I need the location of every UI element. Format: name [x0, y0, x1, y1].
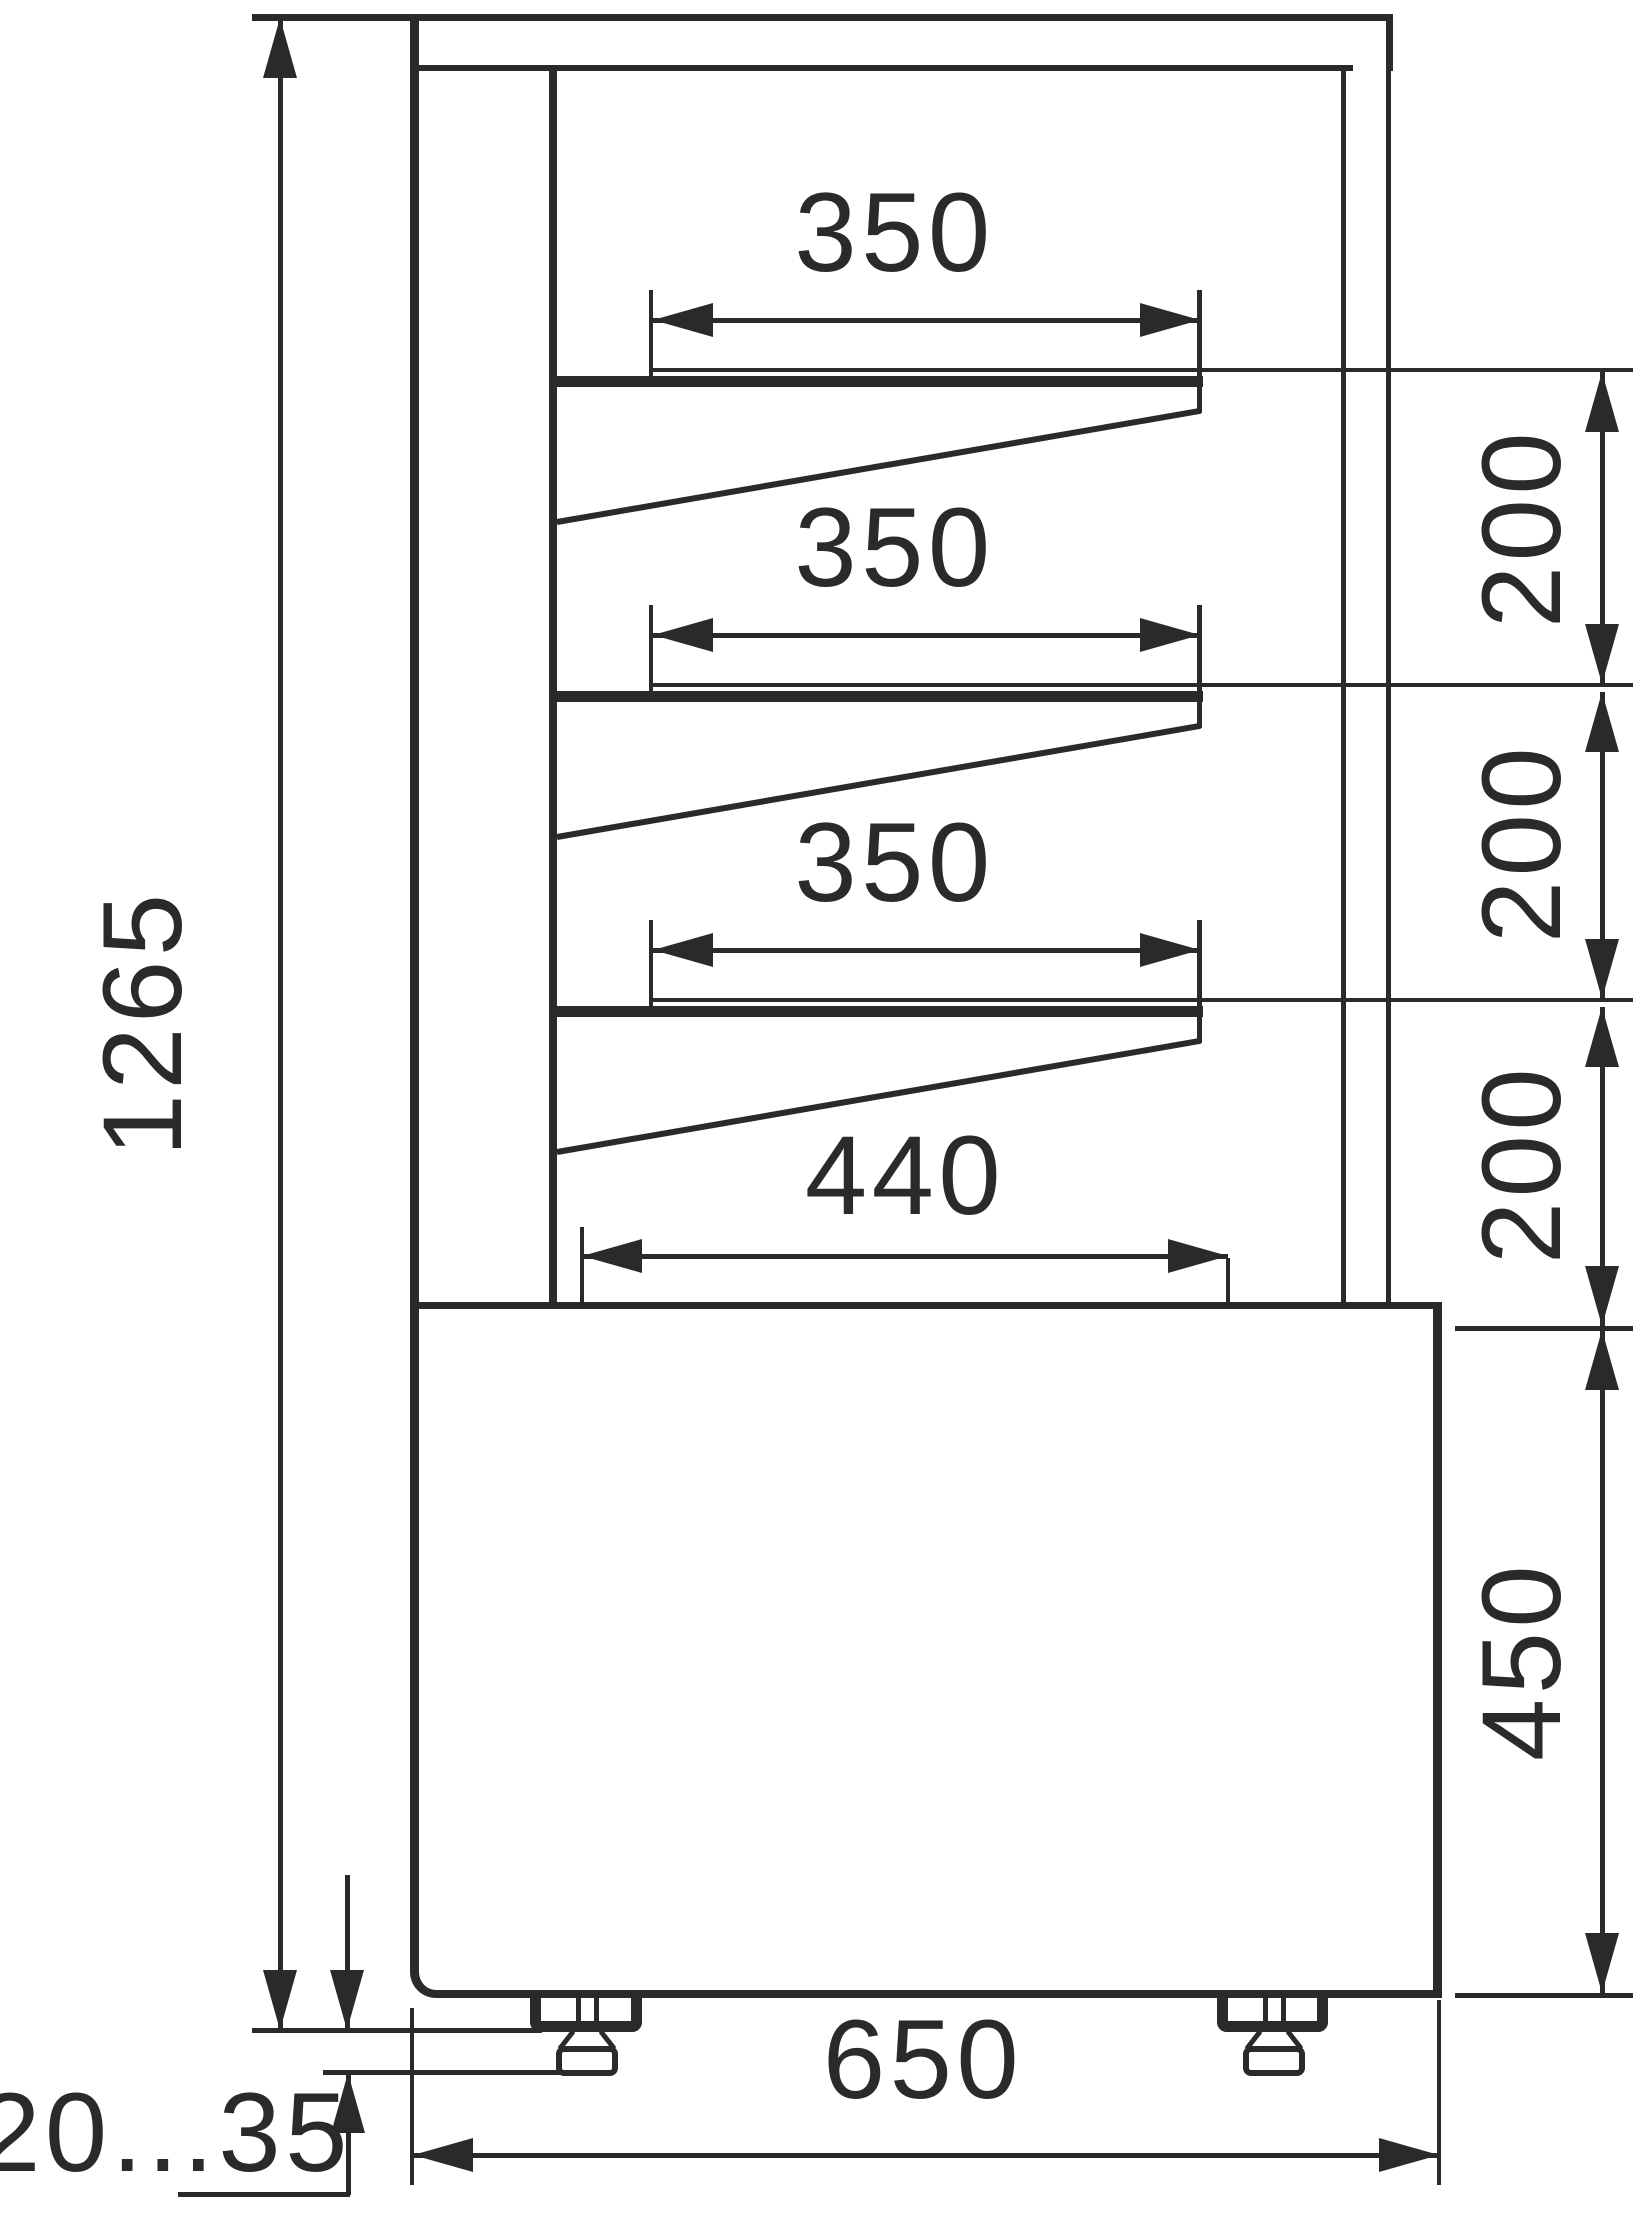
- technical-drawing: 1265 350 350 350 440 200 200 200 450 650: [0, 0, 1650, 2218]
- foot-pad-right: [1243, 2046, 1305, 2076]
- label-shelf-1-depth: 350: [620, 182, 1169, 282]
- label-gap-3: 200: [1471, 999, 1571, 1329]
- dim-line-base-height: [1600, 1330, 1605, 1993]
- dim-line-shelf-1: [653, 318, 1200, 323]
- arrowhead-shelf-2-right: [1140, 618, 1200, 652]
- arrowhead-shelf-3-left: [653, 933, 713, 967]
- arrowhead-gap-1-bottom: [1585, 624, 1619, 684]
- foot-screw-right-b: [1281, 1996, 1286, 2029]
- label-base-depth: 650: [650, 2012, 1196, 2107]
- arrowhead-base-height-top: [1585, 1330, 1619, 1390]
- arrowhead-gap-3-top: [1585, 1007, 1619, 1067]
- arrowhead-bottom-shelf-left: [582, 1239, 642, 1273]
- foot-screw-left-a: [576, 1996, 581, 2029]
- top-panel-top-edge: [252, 14, 1393, 21]
- dim-line-shelf-2: [653, 633, 1200, 638]
- foot-bracket-left: [530, 1995, 642, 2032]
- arrowhead-shelf-2-left: [653, 618, 713, 652]
- rear-wall: [410, 14, 419, 1306]
- dim-line-base-depth: [413, 2153, 1439, 2158]
- ext-tick-bottom: [1455, 1993, 1633, 1998]
- rear-duct-panel: [549, 68, 557, 1306]
- label-foot-range: 20...35: [0, 2085, 330, 2180]
- dim-line-bottom-shelf: [582, 1254, 1228, 1259]
- label-base-height: 450: [1471, 1496, 1571, 1826]
- foot-min-level-line: [252, 2028, 542, 2033]
- label-shelf-2-depth: 350: [620, 497, 1169, 597]
- arrowhead-base-height-bottom: [1585, 1933, 1619, 1993]
- label-gap-2: 200: [1471, 678, 1571, 1008]
- arrowhead-shelf-1-left: [653, 303, 713, 337]
- arrowhead-base-depth-left: [413, 2138, 473, 2172]
- dim-line-shelf-3: [653, 948, 1200, 953]
- arrowhead-gap-3-bottom: [1585, 1266, 1619, 1326]
- label-shelf-3-depth: 350: [620, 812, 1169, 912]
- arrowhead-bottom-shelf-right: [1168, 1239, 1228, 1273]
- arrowhead-foot-range-down: [330, 1970, 364, 2030]
- foot-pad-left: [556, 2046, 618, 2076]
- label-overall-height: 1265: [86, 813, 198, 1233]
- foot-bracket-right: [1217, 1995, 1328, 2032]
- arrowhead-shelf-1-right: [1140, 303, 1200, 337]
- front-glass-inner: [1341, 68, 1346, 1306]
- front-glass-outer: [1386, 20, 1391, 1306]
- arrowhead-gap-1-top: [1585, 372, 1619, 432]
- arrowhead-base-depth-right: [1379, 2138, 1439, 2172]
- arrowhead-gap-2-top: [1585, 692, 1619, 752]
- arrowhead-overall-height-top: [263, 18, 297, 78]
- base-cabinet-outline: [410, 1302, 1442, 1998]
- arrowhead-gap-2-bottom: [1585, 939, 1619, 999]
- foot-screw-right-a: [1263, 1996, 1268, 2029]
- label-bottom-shelf-depth: 440: [582, 1128, 1228, 1223]
- foot-screw-left-b: [594, 1996, 599, 2029]
- arrowhead-shelf-3-right: [1140, 933, 1200, 967]
- arrowhead-overall-height-bottom: [263, 1970, 297, 2030]
- dim-line-overall-height: [278, 18, 283, 2030]
- label-gap-1: 200: [1471, 363, 1571, 693]
